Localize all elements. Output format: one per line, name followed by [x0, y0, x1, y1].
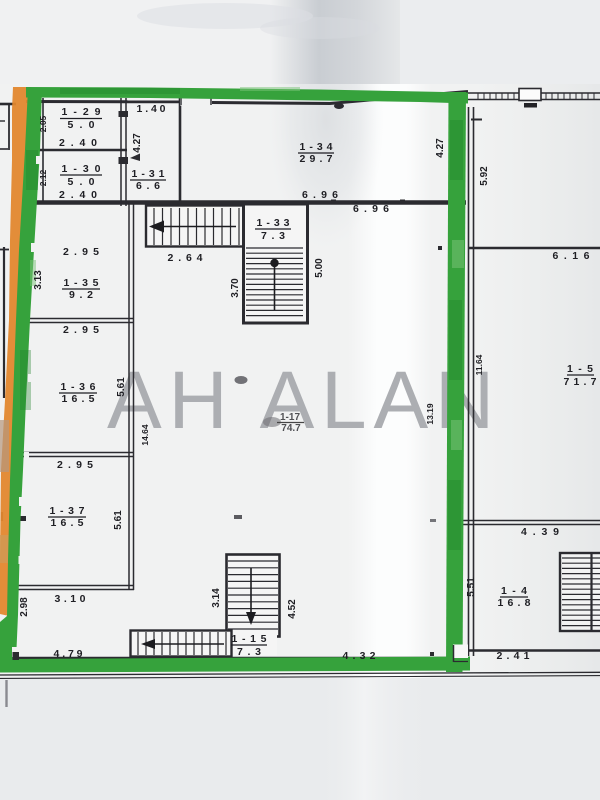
svg-text:3.10: 3.10 [55, 593, 86, 605]
svg-text:1-17: 1-17 [280, 412, 300, 423]
svg-text:3.70: 3.70 [230, 278, 241, 298]
svg-text:4.27: 4.27 [132, 133, 143, 153]
svg-text:1-31: 1-31 [132, 168, 165, 180]
svg-text:5.61: 5.61 [116, 377, 127, 397]
svg-text:5.51: 5.51 [466, 577, 477, 597]
svg-text:7.3: 7.3 [237, 646, 261, 658]
svg-text:2.05: 2.05 [38, 115, 48, 132]
svg-text:2.41: 2.41 [497, 650, 530, 662]
svg-text:4.79: 4.79 [54, 648, 83, 660]
svg-text:4.27: 4.27 [435, 138, 446, 158]
svg-text:13.19: 13.19 [425, 403, 435, 425]
svg-text:3.13: 3.13 [33, 270, 44, 290]
svg-text:7.3: 7.3 [261, 230, 285, 242]
svg-text:4.32: 4.32 [343, 650, 376, 662]
svg-text:5.0: 5.0 [68, 119, 95, 131]
svg-text:AH ALAN: AH ALAN [107, 355, 501, 446]
svg-text:2.98: 2.98 [19, 597, 30, 617]
svg-text:9.2: 9.2 [69, 289, 93, 301]
svg-text:5.92: 5.92 [479, 166, 490, 186]
svg-text:5.61: 5.61 [113, 510, 124, 530]
svg-text:1.40: 1.40 [137, 103, 166, 115]
svg-text:2.64: 2.64 [168, 252, 203, 264]
svg-text:1-5: 1-5 [567, 363, 593, 375]
svg-text:14.64: 14.64 [140, 424, 150, 446]
svg-text:5.00: 5.00 [314, 258, 325, 278]
svg-text:3.14: 3.14 [211, 588, 222, 608]
svg-text:4.52: 4.52 [287, 599, 298, 619]
svg-text:1-34: 1-34 [300, 141, 333, 153]
svg-text:1-4: 1-4 [501, 585, 527, 597]
svg-text:11.64: 11.64 [474, 354, 484, 375]
svg-text:6.6: 6.6 [136, 180, 160, 192]
svg-text:2.12: 2.12 [38, 169, 48, 186]
svg-text:74.7: 74.7 [281, 423, 301, 434]
svg-text:1-33: 1-33 [257, 217, 290, 229]
svg-text:5.0: 5.0 [68, 176, 95, 188]
